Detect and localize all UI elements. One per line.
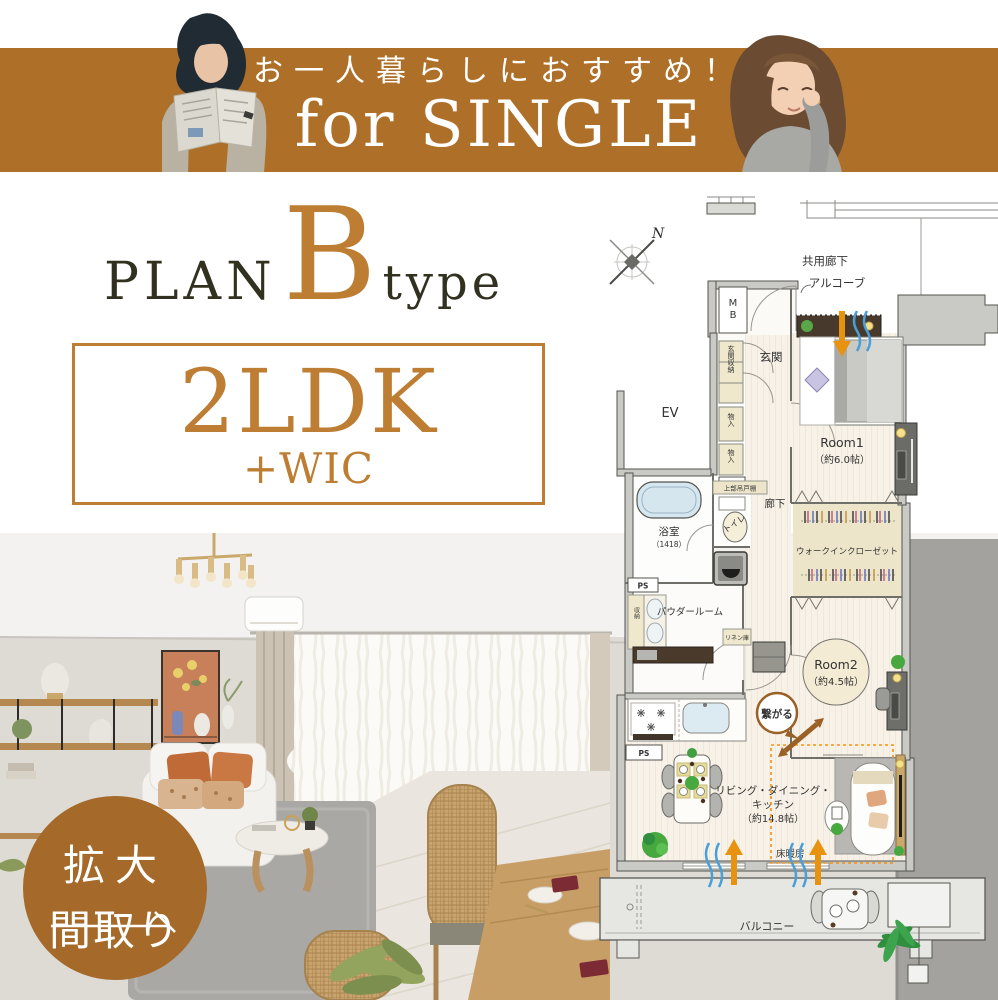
room2-plant: [891, 655, 905, 669]
mb-label-1: M: [729, 298, 738, 309]
plan-title: PLAN B type: [104, 198, 504, 313]
enlarge-floorplan-button[interactable]: 拡大 間取り: [23, 796, 207, 980]
enlarge-label-1: 拡大: [23, 832, 207, 893]
balcony: バルコニー: [600, 878, 985, 983]
room2-label: Room2: [814, 657, 858, 672]
plan-sofa: [851, 763, 895, 855]
arrow-right-icon: [51, 910, 181, 936]
upper-cabinet: 上部吊戸棚: [713, 481, 767, 494]
paisley-pillow: [158, 779, 204, 809]
kitchen-sink: [683, 703, 729, 733]
corridor-floor: [745, 335, 791, 693]
pipe-space-3: PS: [626, 745, 662, 760]
balcony-label: バルコニー: [740, 920, 795, 933]
entrance-label: 玄関: [760, 350, 783, 364]
closet-1-label: 物入: [727, 412, 735, 427]
banner-tagline: お一人暮らしにおすすめ！: [0, 54, 998, 90]
meter-box: M B: [719, 287, 747, 333]
connect-label: 繋がる: [760, 708, 793, 721]
powder-room-label: パウダールーム: [657, 606, 723, 618]
bathroom-label: 浴室: [659, 525, 680, 538]
compass-icon: N: [610, 226, 665, 284]
alcove-label: アルコーブ: [809, 276, 866, 290]
closet-2-label: 物入: [727, 448, 735, 463]
room1-label: Room1: [820, 435, 864, 450]
air-conditioner: [245, 597, 303, 631]
upper-cabinet-label: 上部吊戸棚: [724, 484, 757, 493]
pipe-space-2: PS: [628, 578, 658, 592]
shelf-plant: [12, 719, 32, 739]
tv-board: [894, 755, 905, 856]
banner-text: お一人暮らしにおすすめ！ for SINGLE: [0, 54, 998, 159]
ldk-label-2: キッチン: [752, 799, 794, 811]
plan-type-word: type: [383, 255, 505, 311]
page: お一人暮らしにおすすめ！ for SINGLE PLAN B type 2LDK…: [0, 0, 998, 1000]
mb-label-2: B: [730, 310, 737, 321]
paisley-pillow-2: [202, 781, 244, 809]
entrance-storage-label: 玄関収納: [727, 344, 735, 374]
ps2-label: PS: [638, 582, 649, 591]
ldk-label-3: （約14.8帖）: [742, 812, 804, 825]
table-plant: [302, 807, 318, 823]
compass-n-label: N: [651, 226, 665, 242]
layout-type-sub: +WIC: [243, 448, 374, 490]
powder-storage: 収納: [628, 595, 644, 649]
washing-machine: [714, 552, 747, 585]
bathroom-size-label: （1418）: [652, 540, 686, 549]
banner-title: for SINGLE: [0, 92, 998, 159]
ps3-label: PS: [639, 749, 650, 758]
elevator-label: EV: [661, 406, 678, 421]
storage-label: 収納: [633, 607, 640, 620]
corridor-label: 廊下: [765, 497, 786, 510]
wic-label: ウォークインクローゼット: [796, 546, 898, 557]
linen-cabinet: リネン庫: [723, 629, 751, 645]
linen-label: リネン庫: [725, 634, 749, 642]
common-corridor-label: 共用廊下: [802, 254, 848, 268]
bed: [800, 337, 903, 425]
room1-desk: [895, 423, 917, 495]
layout-type-box: 2LDK +WIC: [72, 343, 545, 505]
closet-2: 物入: [719, 444, 743, 475]
closet-1: 物入: [719, 407, 743, 441]
room2-size-label: （約4.5帖）: [808, 675, 864, 688]
plan-letter: B: [283, 198, 377, 313]
room1-size-label: （約6.0帖）: [814, 453, 870, 466]
white-vase: [222, 705, 234, 729]
ldk-label-1: リビング・ダイニング・: [715, 784, 831, 797]
layout-type: 2LDK: [179, 358, 438, 446]
kitchen: [628, 699, 746, 741]
entrance-storage: 玄関収納: [719, 341, 743, 403]
floorplan: N 共用廊下 アルコーブ: [595, 185, 998, 1000]
plan-word: PLAN: [104, 252, 277, 312]
